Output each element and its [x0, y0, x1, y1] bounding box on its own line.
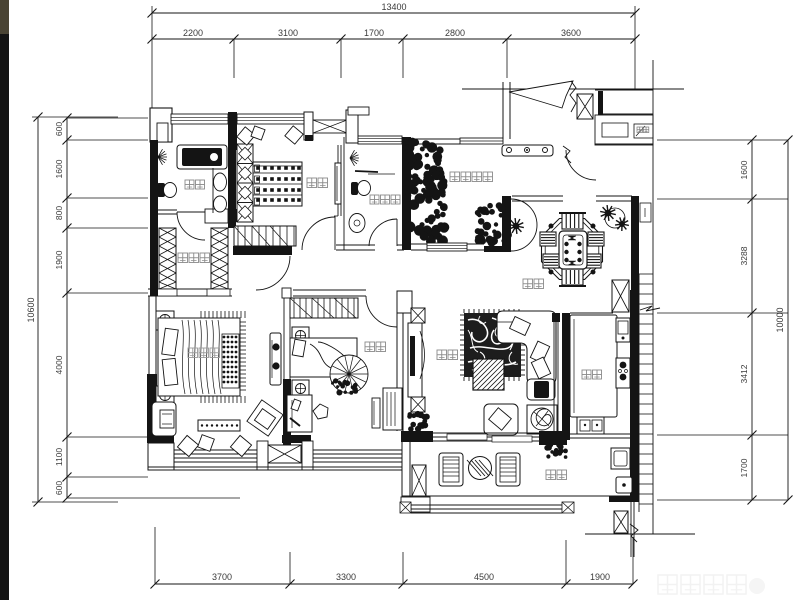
svg-text:1100: 1100 [54, 448, 64, 467]
svg-text:2200: 2200 [183, 28, 203, 38]
svg-text:1700: 1700 [364, 28, 384, 38]
svg-text:800: 800 [54, 206, 64, 220]
svg-text:3100: 3100 [278, 28, 298, 38]
svg-text:1700: 1700 [739, 458, 749, 477]
svg-text:600: 600 [54, 481, 64, 495]
svg-text:4000: 4000 [54, 355, 64, 374]
svg-text:13400: 13400 [381, 2, 406, 12]
svg-text:2800: 2800 [445, 28, 465, 38]
svg-text:1900: 1900 [54, 250, 64, 269]
svg-text:3600: 3600 [561, 28, 581, 38]
svg-text:3300: 3300 [336, 572, 356, 582]
svg-text:1600: 1600 [739, 160, 749, 179]
svg-text:1600: 1600 [54, 159, 64, 178]
svg-text:3412: 3412 [739, 364, 749, 383]
svg-text:3700: 3700 [212, 572, 232, 582]
svg-text:10000: 10000 [775, 307, 785, 332]
svg-text:10600: 10600 [26, 297, 36, 322]
svg-text:4500: 4500 [474, 572, 494, 582]
svg-text:600: 600 [54, 122, 64, 136]
svg-text:1900: 1900 [590, 572, 610, 582]
svg-text:3288: 3288 [739, 246, 749, 265]
